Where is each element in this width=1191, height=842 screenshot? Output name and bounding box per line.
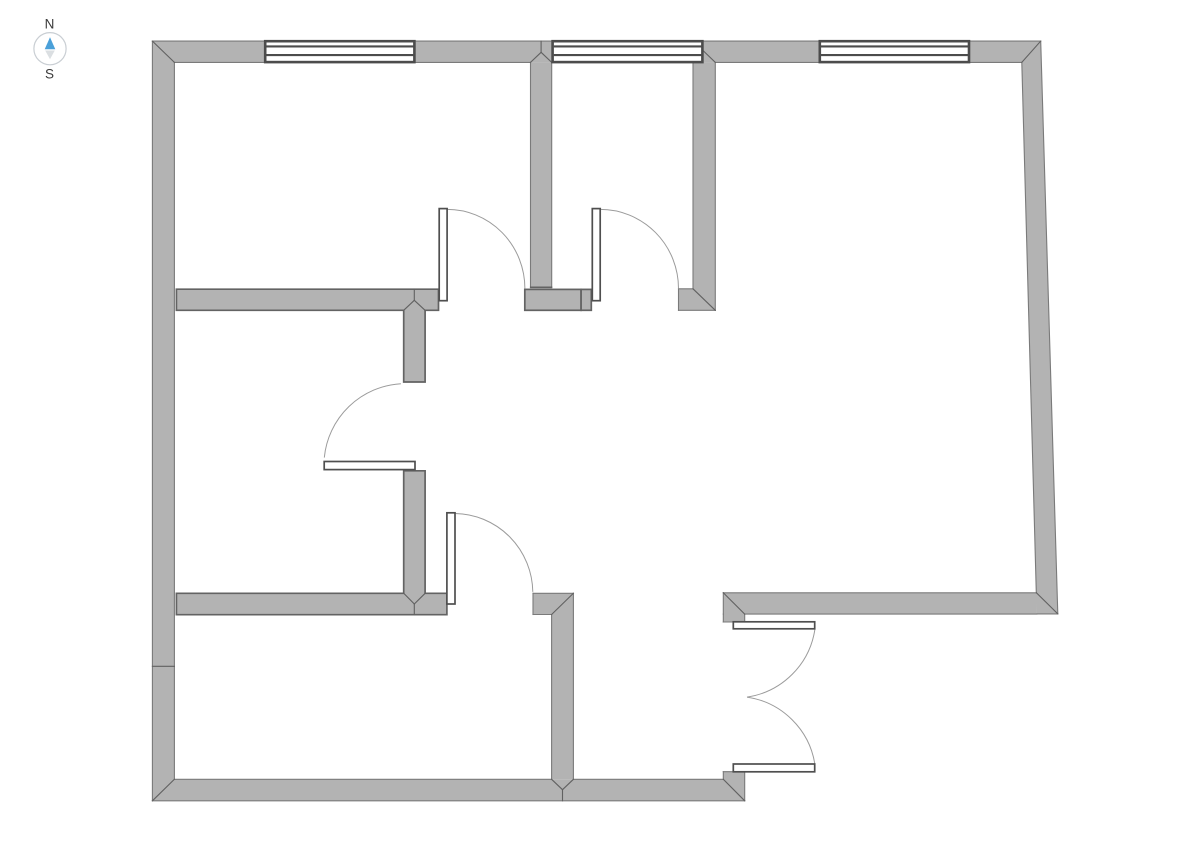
svg-text:S: S	[45, 67, 54, 82]
svg-text:N: N	[45, 17, 55, 32]
